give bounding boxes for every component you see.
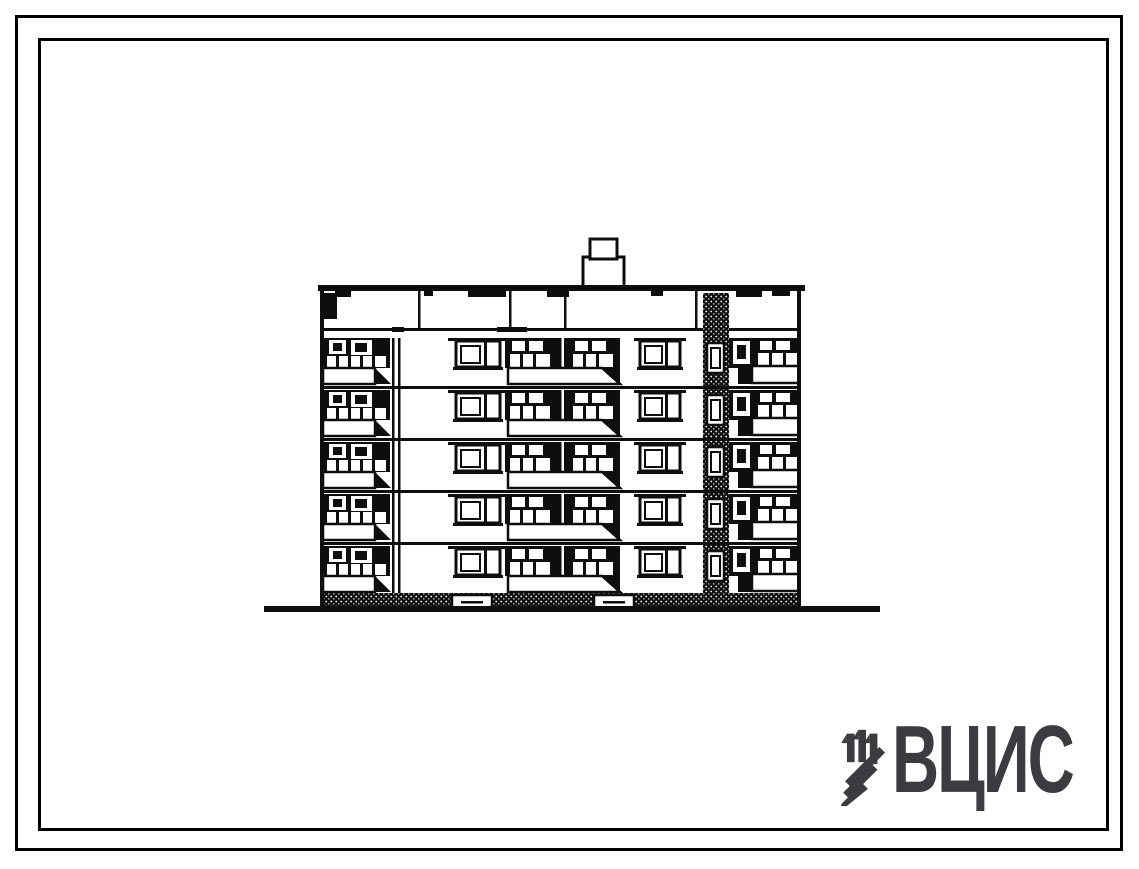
logo-text: ВЦИС <box>892 712 1073 808</box>
building-elevation-drawing <box>260 225 890 620</box>
catalog-sheet: ВЦИС <box>0 0 1139 869</box>
plinth <box>322 593 800 608</box>
chimney <box>583 239 624 288</box>
ground-line <box>264 606 880 612</box>
roof-line <box>318 285 805 291</box>
publisher-logo: ВЦИС <box>840 712 1090 812</box>
logo-emblem-icon <box>840 726 892 806</box>
